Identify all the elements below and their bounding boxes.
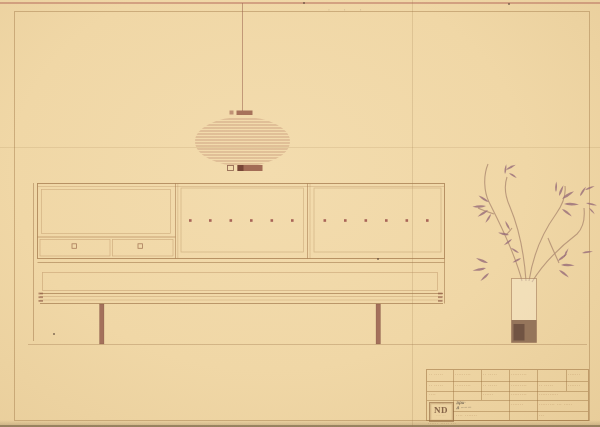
tb-cell: ········· (511, 393, 527, 397)
drawing-artwork (0, 0, 600, 427)
drawing-sheet: · · · (0, 0, 600, 427)
paper-speck (377, 258, 379, 260)
paper-speck (303, 2, 305, 4)
tb-cell: ········· (455, 384, 471, 388)
bench-drawing (28, 259, 587, 345)
plant-vase-drawing (472, 164, 597, 343)
tb-cell: ········· (455, 373, 471, 377)
tb-cell: ·· ····· (539, 384, 553, 388)
paper-speck (53, 333, 55, 335)
sideboard-drawing (34, 183, 445, 341)
tb-cell: ········· ··· ····· (539, 403, 573, 407)
tb-cell: ·· ····· (429, 384, 443, 388)
title-block: ·· ····· ········· ·· ····· ········· ··… (426, 369, 589, 421)
tb-cell: ······ (483, 393, 494, 397)
paper-speck (508, 3, 510, 5)
tb-cell: ·· ····· (429, 373, 443, 377)
tb-cell: ···· (429, 393, 436, 397)
pendant-lamp-drawing (193, 3, 292, 171)
handwritten-signature: apu· A ········ (456, 401, 472, 411)
tb-cell: ······· (568, 384, 580, 388)
tb-cell: ······· (511, 403, 523, 407)
tb-cell: ·· ····· (483, 373, 497, 377)
vase (512, 279, 537, 343)
tb-cell: ·· ····· (483, 384, 497, 388)
nd-logo-caption-below: ······ ····· ··· (428, 422, 456, 426)
nd-logo-box: ····· ND ······· (429, 402, 454, 423)
tb-cell: ········· (511, 384, 527, 388)
tb-cell: ··· (539, 414, 544, 418)
nd-logo-caption-bottom: ······· (430, 415, 453, 418)
tb-cell: ··········· (539, 393, 559, 397)
tb-cell: ······· (568, 373, 580, 377)
plant-leaves (472, 164, 597, 282)
tb-cell: ········· (511, 373, 527, 377)
tb-cell: ···· ······· (456, 414, 477, 418)
